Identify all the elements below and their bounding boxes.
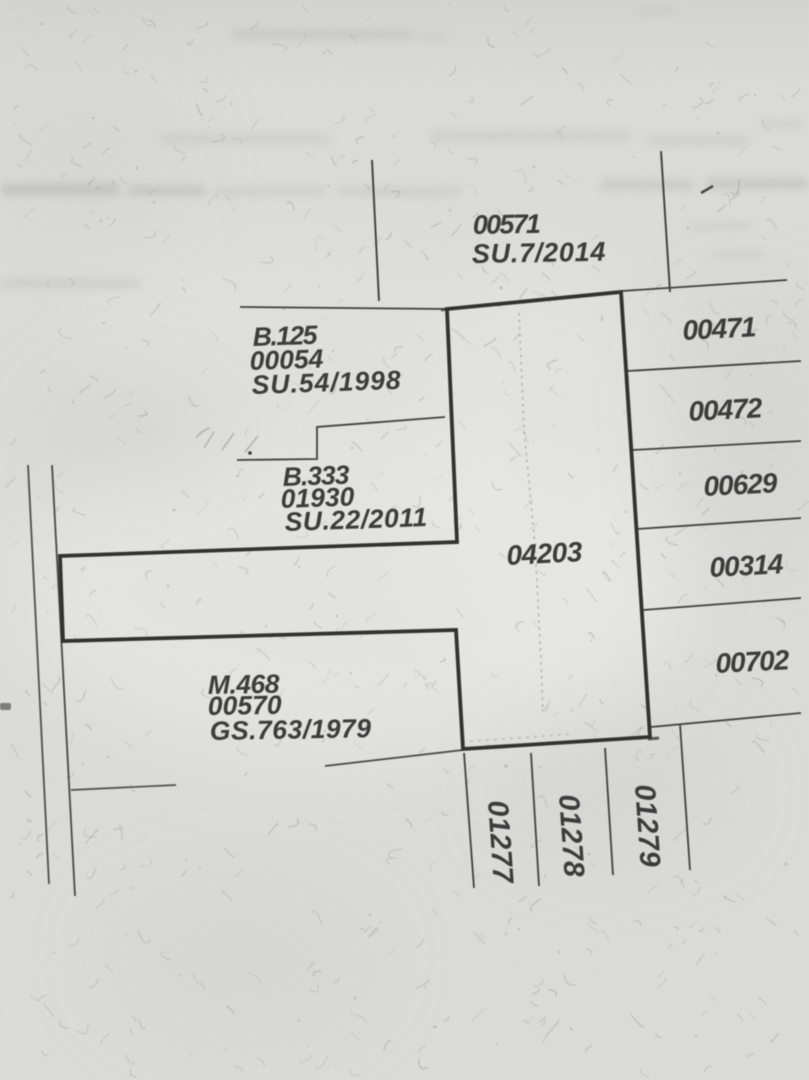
- svg-text:01279: 01279: [628, 783, 666, 868]
- svg-text:GS.763/1979: GS.763/1979: [210, 713, 372, 746]
- svg-text:00314: 00314: [709, 548, 785, 583]
- svg-text:00571: 00571: [473, 209, 541, 240]
- svg-text:00471: 00471: [682, 311, 757, 346]
- svg-text:01277: 01277: [481, 799, 519, 886]
- svg-text:SU.54/1998: SU.54/1998: [251, 365, 402, 400]
- svg-text:SU.7/2014: SU.7/2014: [472, 237, 607, 269]
- svg-text:00472: 00472: [688, 392, 764, 427]
- svg-text:SU.22/2011: SU.22/2011: [284, 502, 428, 537]
- svg-text:00702: 00702: [715, 644, 791, 679]
- svg-text:00629: 00629: [703, 467, 779, 502]
- svg-text:04203: 04203: [506, 536, 584, 571]
- svg-text:01278: 01278: [552, 793, 590, 879]
